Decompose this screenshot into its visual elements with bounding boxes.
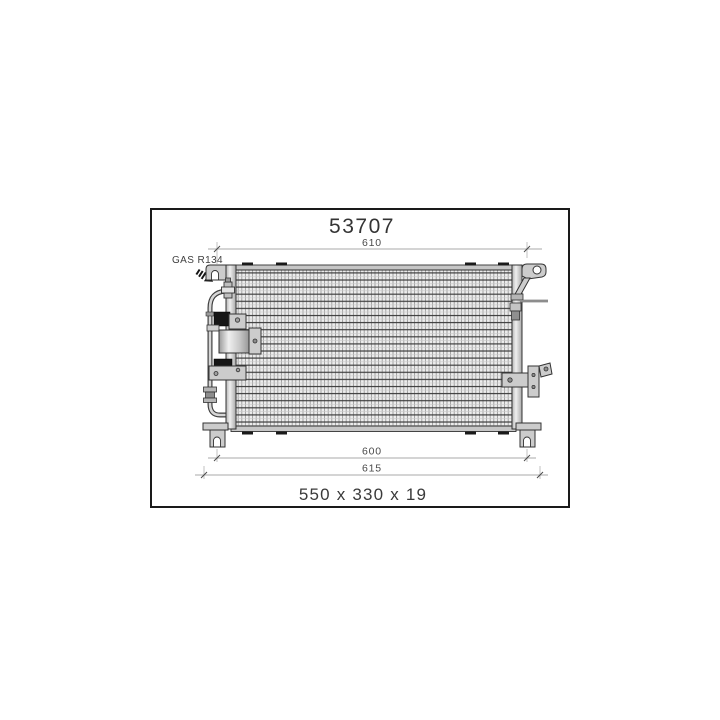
condenser-assembly bbox=[203, 263, 552, 448]
bottom-header bbox=[231, 426, 516, 432]
overall-dimension-label: 615 bbox=[362, 463, 382, 475]
catalog-page: 53707 610 GAS R134 bbox=[0, 0, 720, 720]
condenser-core bbox=[235, 270, 512, 426]
drier-cylinder bbox=[219, 330, 251, 353]
top-left-bracket bbox=[206, 265, 226, 280]
condenser-technical-drawing: 53707 610 GAS R134 bbox=[150, 208, 570, 508]
pipe-fitting-nut bbox=[204, 387, 217, 403]
mounting-dimension-label: 600 bbox=[362, 446, 382, 458]
size-label: 550 x 330 x 19 bbox=[299, 485, 427, 504]
part-number-label: 53707 bbox=[329, 215, 395, 238]
drawing-frame: 53707 610 GAS R134 bbox=[150, 208, 570, 508]
gas-label: GAS R134 bbox=[172, 255, 223, 266]
top-dimension-label: 610 bbox=[362, 237, 382, 249]
